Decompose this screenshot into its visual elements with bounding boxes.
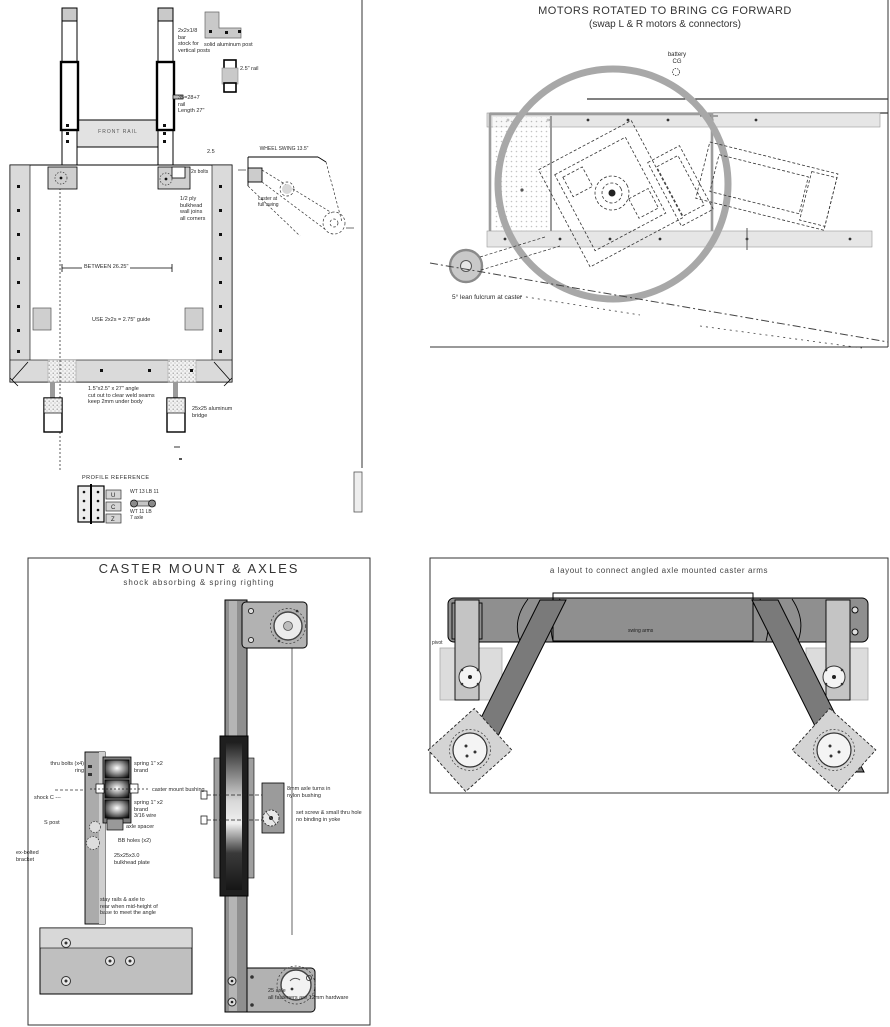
axle-detail	[201, 736, 264, 896]
left-post	[61, 8, 78, 168]
wall-note: 1/2 ply bulkhead wall joins all corners	[180, 196, 216, 222]
label-bb-holes: BB holes (x2)	[118, 838, 151, 845]
bottom-rail	[487, 231, 872, 247]
label-spring-bottom: spring 1" x2 brand 3/16 wire	[134, 800, 184, 820]
bolts-label: 2x bolts	[191, 169, 208, 175]
crossbar-label: FRONT RAIL	[85, 129, 151, 135]
label-set-screw: set screw & small thru hole no binding i…	[296, 810, 366, 823]
battery-cg-mark	[673, 69, 680, 76]
tr-title-line1: MOTORS ROTATED TO BRING CG FORWARD	[440, 5, 890, 17]
between-dim-label: BETWEEN 26.25"	[82, 264, 130, 271]
br-title: a layout to connect angled axle mounted …	[430, 566, 888, 575]
legend-title: PROFILE REFERENCE	[82, 475, 149, 482]
swing-arms-label: swing arms	[628, 628, 653, 634]
rail-clip-label: 2.5" rail	[240, 66, 258, 73]
legend-wt2: WT 11 LB 7 axle	[130, 509, 152, 521]
bl-bottom-label: 25 axle all fasteners are 12mm hardware	[268, 988, 366, 1001]
axle-hub	[609, 190, 616, 197]
label-ex-bracket: ex-bolted bracket	[16, 850, 62, 863]
blueprint-page: U C Z	[0, 0, 890, 1027]
swing-note: caster at full swing	[258, 196, 279, 208]
top-caster-bracket	[242, 602, 307, 648]
rail-clip-icon	[222, 60, 238, 92]
caster-arms-layout-drawing	[428, 558, 888, 793]
bridge-label: 25x25 aluminum bridge	[192, 406, 252, 419]
label-axle-spacer: axle spacer	[126, 824, 154, 831]
caster-lean-note: 5° lean fulcrum at caster	[452, 294, 522, 302]
tr-title-line2: (swap L & R motors & connectors)	[440, 19, 890, 30]
front-frame-drawing: U C Z	[10, 0, 362, 524]
label-shock: shock C ---	[34, 795, 61, 802]
bl-title: CASTER MOUNT & AXLES	[28, 561, 370, 576]
label-spring-top: spring 1" x2 brand	[134, 761, 184, 774]
legend-tab-c: C	[111, 505, 116, 511]
angle-note: 1.5"x2.5" x 27" angle cut out to clear w…	[88, 386, 198, 406]
small-dim-label: 2.5	[207, 149, 215, 156]
guide-note: USE 2x2s = 2.75" guide	[92, 317, 150, 324]
gearbox-outline	[648, 146, 714, 226]
legend-tab-z: Z	[111, 517, 115, 523]
label-axle-bushing: 8mm axle turns in nylon bushing	[287, 786, 349, 799]
edge-bracket	[354, 472, 362, 512]
battery-sled-outline	[696, 142, 838, 230]
alum-post-label: solid aluminum post	[204, 42, 266, 49]
swing-arm-detail	[238, 157, 354, 236]
swing-dim-label: WHEEL SWING 13.5"	[248, 146, 320, 152]
label-thru-bolts: thru bolts (x4) ring	[42, 761, 84, 774]
legend-wt1: WT 13 LB 11	[130, 489, 159, 495]
cross-beam	[448, 598, 868, 642]
yoke-plate	[262, 783, 284, 833]
base-plate	[40, 928, 192, 994]
battery-cg-label: battery CG	[652, 52, 702, 66]
legend-tab-u: U	[111, 493, 115, 499]
ground-line	[430, 263, 888, 342]
bl-subtitle: shock absorbing & spring righting	[28, 578, 370, 587]
bl-note: stay rails & axle to rear when mid-heigh…	[100, 897, 195, 917]
label-s-post: S post	[44, 820, 60, 827]
label-bulkhead-plate: 25x25x3.0 bulkhead plate	[114, 853, 169, 866]
pivot-label: pivot	[432, 640, 443, 646]
rail-length-note: 35=28+7 rail Length 27"	[178, 95, 224, 115]
label-bushing: caster mount bushing	[152, 787, 232, 794]
